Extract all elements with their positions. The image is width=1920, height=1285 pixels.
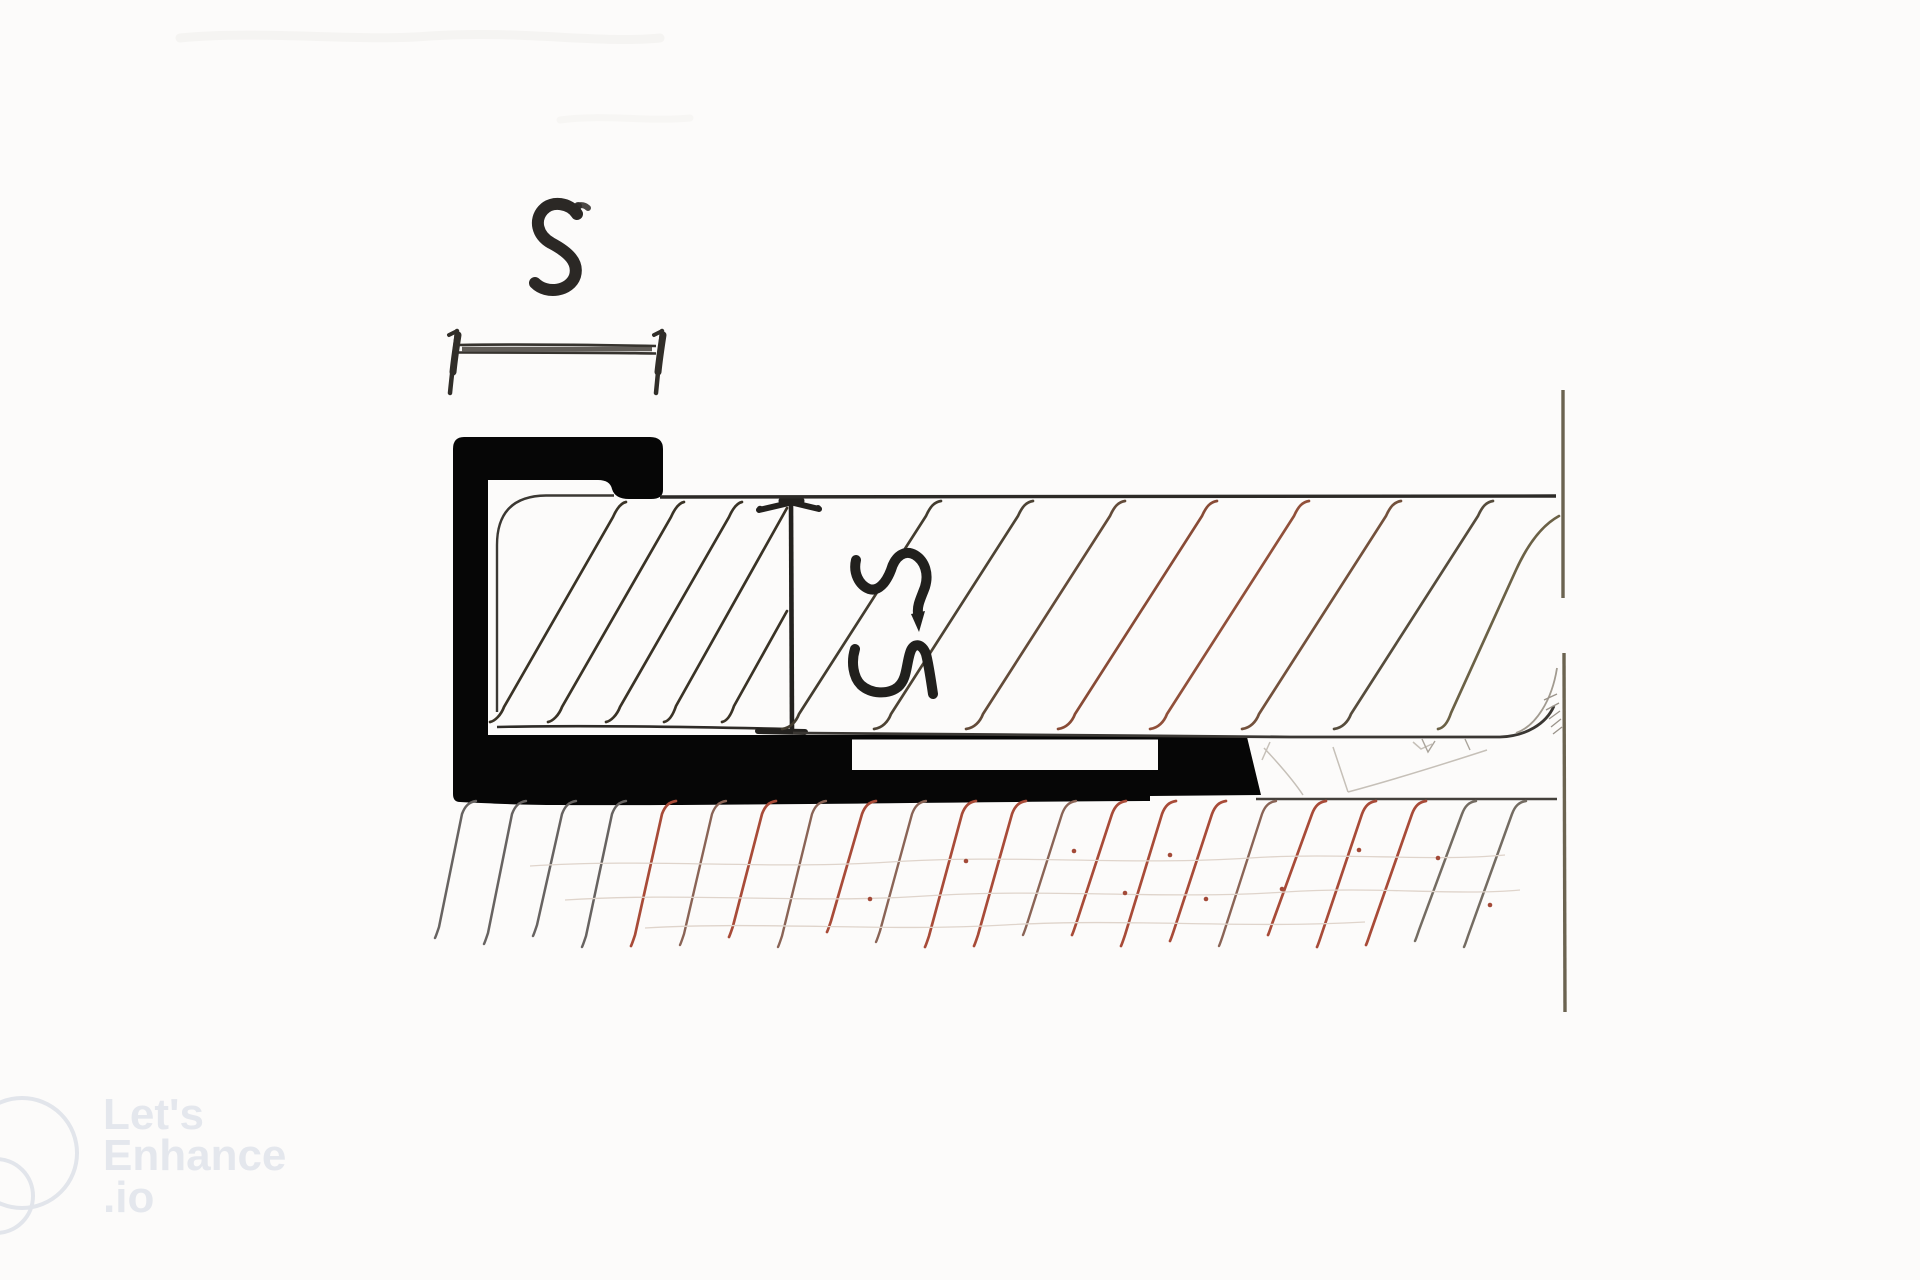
svg-text:.io: .io	[103, 1173, 154, 1222]
